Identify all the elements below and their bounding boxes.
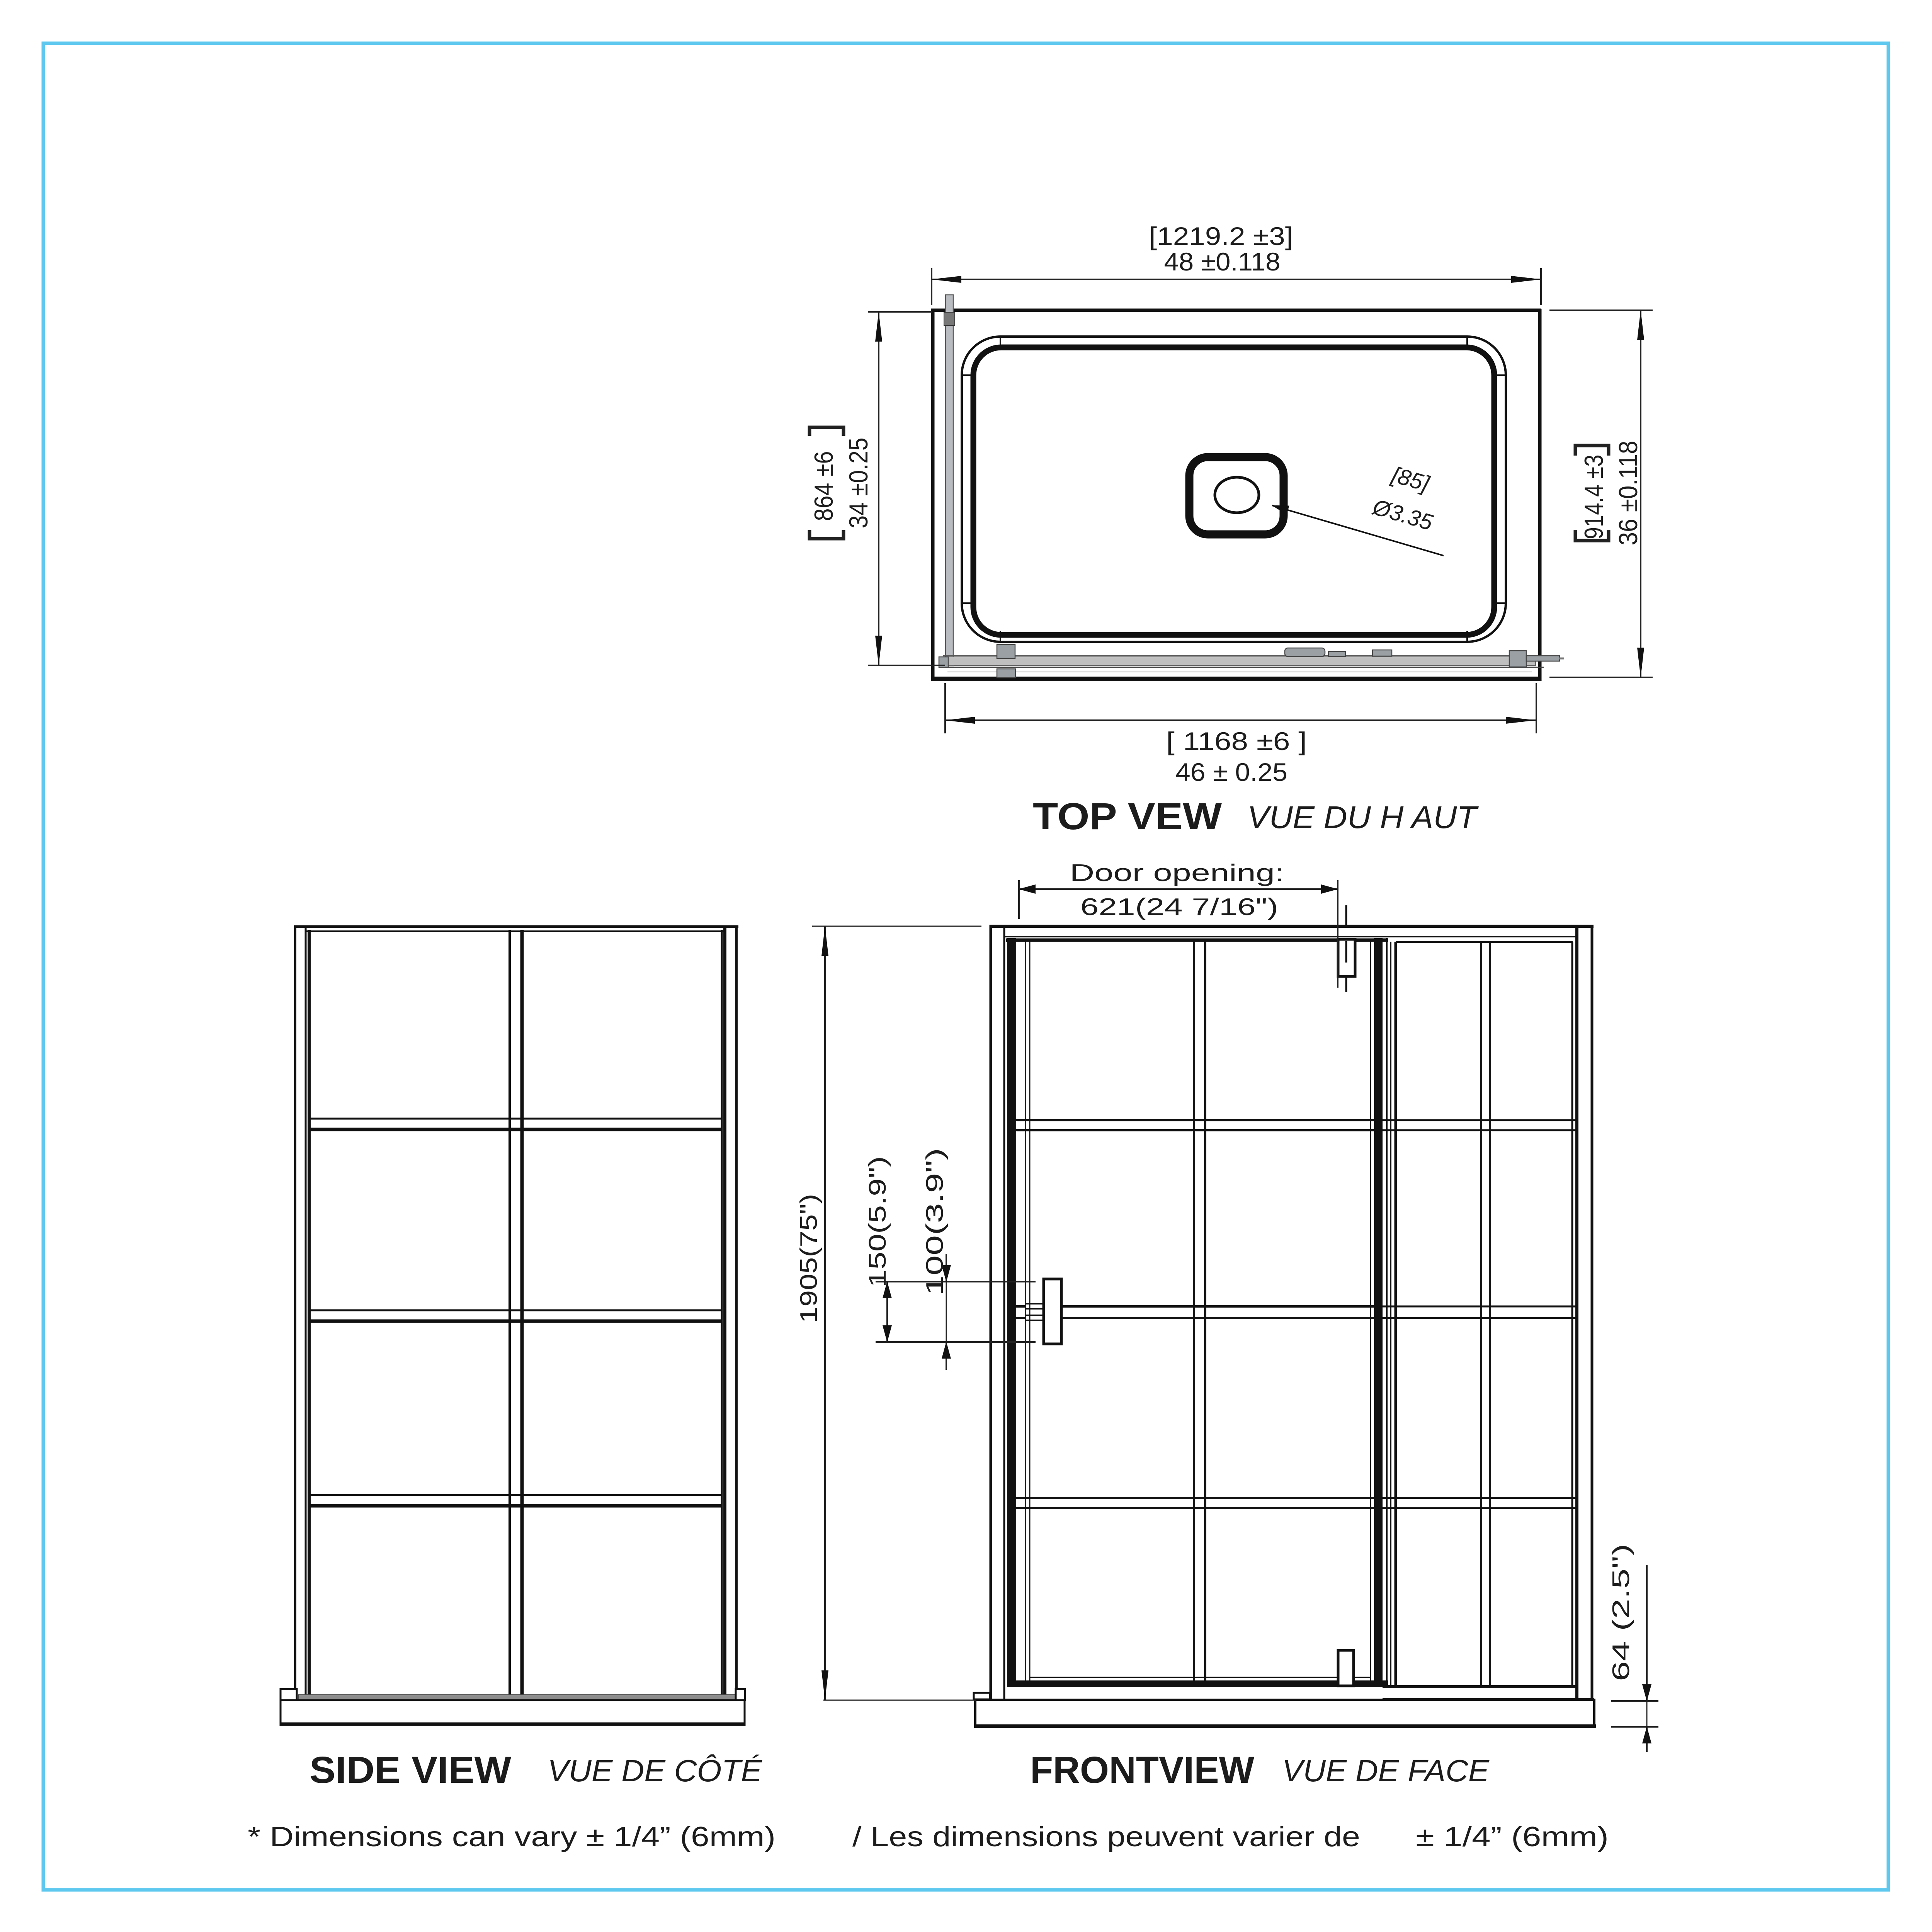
svg-text:48 ±0.118: 48 ±0.118	[1164, 247, 1281, 276]
svg-text:64 (2.5"): 64 (2.5")	[1608, 1544, 1634, 1681]
svg-text:[1219.2 ±3]: [1219.2 ±3]	[1149, 222, 1293, 250]
svg-text:± 1/4” (6mm): ± 1/4” (6mm)	[1416, 1821, 1609, 1852]
svg-text:SIDE VIEW: SIDE VIEW	[310, 1749, 511, 1791]
svg-text:864 ±6: 864 ±6	[809, 451, 838, 521]
svg-text:46 ± 0.25: 46 ± 0.25	[1175, 758, 1287, 786]
svg-text:621(24 7/16"): 621(24 7/16")	[1080, 894, 1278, 920]
svg-text:VUE DE CÔTÉ: VUE DE CÔTÉ	[548, 1753, 763, 1788]
svg-text:1905(75"): 1905(75")	[796, 1194, 822, 1323]
svg-text:150(5.9"): 150(5.9")	[864, 1156, 891, 1287]
svg-text:Door opening:: Door opening:	[1070, 860, 1284, 886]
svg-text:TOP VEW: TOP VEW	[1033, 795, 1222, 837]
svg-text:Ø3.35: Ø3.35	[1369, 494, 1436, 536]
svg-text:36 ±0.118: 36 ±0.118	[1614, 441, 1643, 546]
svg-text:/ Les dimensions peuvent varie: / Les dimensions peuvent varier de	[852, 1821, 1360, 1852]
svg-text:[ 1168 ±6 ]: [ 1168 ±6 ]	[1166, 727, 1307, 755]
svg-text:FRONTVIEW: FRONTVIEW	[1030, 1749, 1254, 1791]
svg-text:VUE DU H AUT: VUE DU H AUT	[1247, 800, 1479, 835]
svg-text:914.4 ±3: 914.4 ±3	[1579, 455, 1609, 539]
svg-text:[85]: [85]	[1388, 462, 1433, 497]
svg-text:100(3.9"): 100(3.9")	[922, 1148, 948, 1296]
svg-text:VUE DE FACE: VUE DE FACE	[1282, 1753, 1490, 1788]
svg-text:* Dimensions can vary ± 1/4” (: * Dimensions can vary ± 1/4” (6mm)	[248, 1821, 776, 1852]
svg-text:34 ±0.25: 34 ±0.25	[844, 438, 873, 529]
